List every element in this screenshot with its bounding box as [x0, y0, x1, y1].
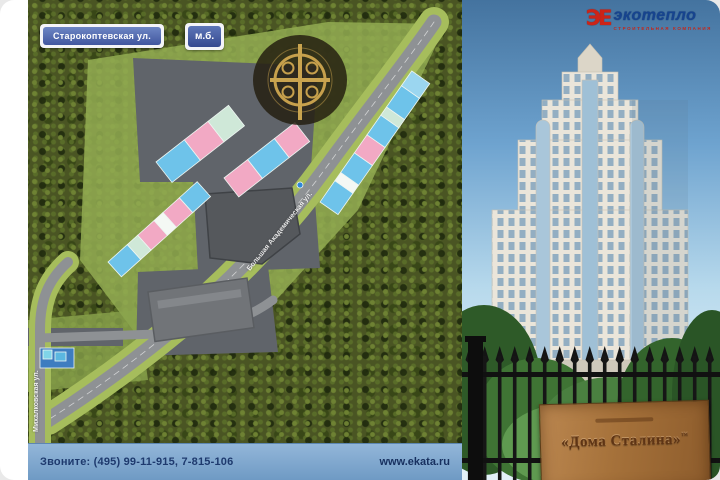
- street-name-label: Старокоптевская ул.: [43, 27, 161, 45]
- left-road-label: Михалковская ул.: [33, 370, 40, 432]
- logo-mark-icon: ЭЕ: [586, 8, 610, 28]
- phone-numbers: Звоните: (495) 99-11-915, 7-815-106: [40, 456, 233, 468]
- trademark-mark: ™: [681, 431, 689, 439]
- website-link[interactable]: www.ekata.ru: [379, 456, 450, 468]
- sign-title: «Дома Сталина»™: [541, 431, 709, 452]
- street-name-plate: Старокоптевская ул.: [40, 24, 164, 48]
- corner-badge-plate: м.б.: [185, 23, 224, 50]
- building-photo: ЭЕ экотепло СТРОИТЕЛЬНАЯ КОМПАНИЯ «Дома …: [462, 0, 720, 480]
- sign-decor-line: [595, 417, 653, 423]
- building-small-southwest: [40, 348, 74, 368]
- wooden-sign: «Дома Сталина»™: [539, 400, 711, 480]
- map-marker-dot: [297, 182, 303, 188]
- contact-bar: Звоните: (495) 99-11-915, 7-815-106 www.…: [28, 443, 462, 480]
- logo-tagline: СТРОИТЕЛЬНАЯ КОМПАНИЯ: [614, 26, 713, 31]
- logo-name: экотепло: [614, 8, 713, 24]
- advert-page: Старокоптевская ул. м.б. Большая Академи…: [0, 0, 720, 480]
- compass-rose-icon: [253, 35, 347, 125]
- corner-badge-label: м.б.: [188, 26, 221, 47]
- company-logo: ЭЕ экотепло СТРОИТЕЛЬНАЯ КОМПАНИЯ: [586, 8, 712, 31]
- site-plan-drawing: [28, 0, 462, 443]
- site-plan-map: Старокоптевская ул. м.б. Большая Академи…: [28, 0, 462, 443]
